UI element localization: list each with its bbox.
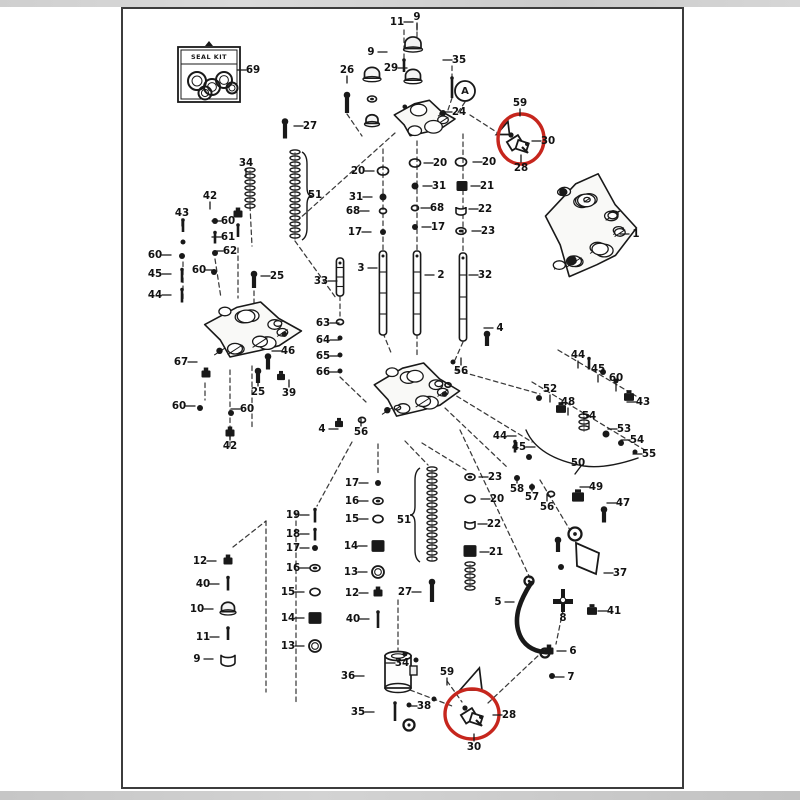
part-glyph-washer [368,96,377,102]
part-glyph-cap [365,115,380,127]
part-glyph-bolt [555,537,562,552]
part-glyph-block [464,545,477,557]
part-glyph-bolt [429,579,436,602]
part-callout-60: 60 [240,403,254,415]
seal-kit-pointer-icon [205,41,213,46]
part-callout-11: 11 [390,16,404,28]
part-glyph-dot [440,110,446,116]
part-callout-60: 60 [172,400,186,412]
part-glyph-washer [373,498,383,505]
part-glyph-pin [393,701,397,721]
part-callout-26: 26 [340,64,354,76]
part-glyph-spool [459,253,466,341]
part-glyph-dot [312,545,318,551]
assembly-dash-line [422,443,466,470]
part-callout-63: 63 [316,317,330,329]
part-callout-40: 40 [346,613,360,625]
part-glyph-pin [180,288,184,303]
part-glyph-cap [404,37,423,52]
part-callout-51: 51 [397,514,411,526]
part-glyph-oring [456,158,467,166]
part-glyph-tri [460,668,482,690]
part-callout-15: 15 [281,586,295,598]
part-callout-45: 45 [512,441,526,453]
assembly-dash-line [340,377,366,402]
part-glyph-oring [410,159,421,167]
part-callout-18: 18 [286,528,300,540]
part-callout-44: 44 [148,289,162,301]
part-callout-45: 45 [148,268,162,280]
part-glyph-dot [618,440,624,446]
part-callout-28: 28 [502,709,516,721]
part-callout-38: 38 [417,700,431,712]
part-glyph-plug [202,368,211,378]
part-glyph-spool [379,251,386,335]
part-callout-9: 9 [413,11,420,23]
seal-kit-title: SEAL KIT [191,53,227,61]
part-glyph-bolt [265,353,272,369]
part-callout-14: 14 [344,540,358,552]
part-callout-4: 4 [318,423,325,435]
part-glyph-bolt [484,331,491,346]
exploded-parts-diagram: SEAL KITA1199292635245930286927341514243… [0,0,800,800]
part-callout-10: 10 [190,603,204,615]
part-callout-20: 20 [490,493,504,505]
part-callout-22: 22 [487,518,501,530]
part-glyph-dot [338,369,343,374]
part-glyph-block [372,540,385,552]
part-glyph-spool [336,258,343,296]
part-callout-36: 36 [341,670,355,682]
assembly-dash-line [295,241,336,298]
part-glyph-pin [450,76,454,98]
part-glyph-pin [376,610,380,628]
part-callout-49: 49 [589,481,603,493]
part-callout-68: 68 [346,205,360,217]
part-glyph-dot [375,480,381,486]
part-callout-64: 64 [316,334,330,346]
assembly-dash-line [250,206,252,246]
part-glyph-dot [603,431,610,438]
part-callout-61: 61 [221,231,235,243]
part-glyph-oring [465,495,475,502]
part-callout-9: 9 [367,46,374,58]
part-glyph-cup [456,207,466,215]
part-glyph-oring [373,515,383,522]
part-callout-62: 62 [223,245,237,257]
part-glyph-dot [380,194,387,201]
part-callout-43: 43 [636,396,650,408]
part-callout-13: 13 [344,566,358,578]
part-callout-54: 54 [582,410,596,422]
part-glyph-plug [224,555,233,565]
part-glyph-pin [402,58,406,72]
part-glyph-spool [413,251,420,335]
part-callout-69: 69 [246,64,260,76]
part-callout-23: 23 [488,471,502,483]
part-glyph-spring [465,562,475,590]
center-valve-body [374,363,459,416]
part-glyph-dot [412,224,418,230]
assembly-dash-line [470,115,498,133]
part-glyph-dot [403,652,408,657]
part-callout-20: 20 [482,156,496,168]
part-callout-56: 56 [540,501,554,513]
part-glyph-dot [412,183,419,190]
part-glyph-plug [572,489,584,501]
part-callout-34: 34 [395,657,409,669]
part-callout-39: 39 [282,387,296,399]
part-glyph-pin [236,223,240,237]
part-callout-42: 42 [223,440,237,452]
part-glyph-plug [277,371,285,380]
part-glyph-dot [432,697,437,702]
part-callout-48: 48 [561,396,575,408]
part-callout-35: 35 [351,706,365,718]
part-glyph-dot [407,703,412,708]
part-callout-32: 32 [478,269,492,281]
part-glyph-eyelet [404,720,415,731]
part-callout-41: 41 [607,605,621,617]
part-callout-16: 16 [286,562,300,574]
part-callout-25: 25 [251,386,265,398]
part-glyph-cap [363,67,381,81]
part-callout-12: 12 [345,587,359,599]
part-glyph-oring [359,417,366,422]
part-callout-20: 20 [433,157,447,169]
scanned-parts-page: SEAL KITA1199292635245930286927341514243… [0,0,800,800]
part-callout-37: 37 [613,567,627,579]
part-glyph-cup [221,655,235,666]
part-glyph-block [457,181,468,191]
part-callout-8: 8 [559,612,566,624]
part-callout-17: 17 [431,221,445,233]
part-callout-29: 29 [384,62,398,74]
part-glyph-dot [526,454,532,460]
part-callout-52: 52 [543,383,557,395]
part-callout-60: 60 [192,264,206,276]
part-callout-16: 16 [345,495,359,507]
part-callout-67: 67 [174,356,188,368]
part-callout-55: 55 [642,448,656,460]
part-callout-44: 44 [571,349,585,361]
part-glyph-plug [335,418,343,427]
part-callout-23: 23 [481,225,495,237]
part-callout-51: 51 [308,189,322,201]
part-glyph-fit [461,705,483,726]
part-glyph-cap [220,602,236,615]
part-glyph-dot [228,410,234,416]
part-glyph-cup [465,521,475,529]
part-glyph-dot [558,564,564,570]
part-callout-4: 4 [496,322,503,334]
part-glyph-bolt [282,118,289,138]
part-callout-25: 25 [270,270,284,282]
seal-kit-box: SEAL KIT [178,41,240,102]
part-callout-21: 21 [480,180,494,192]
part-glyph-bolt [601,506,608,522]
part-glyph-dot [179,253,185,259]
part-callout-28: 28 [514,162,528,174]
assembly-dash-line [215,259,221,298]
assembly-dash-line [488,653,541,703]
part-glyph-washer [465,474,475,481]
part-callout-47: 47 [616,497,630,509]
complete-assembly-1 [546,174,637,277]
part-glyph-pin [226,626,230,640]
part-callout-57: 57 [525,491,539,503]
part-glyph-washer [310,565,320,572]
part-glyph-plug [587,604,597,615]
part-callout-2: 2 [437,269,444,281]
part-glyph-dot [197,405,203,411]
part-callout-19: 19 [286,509,300,521]
part-callout-60: 60 [148,249,162,261]
part-callout-31: 31 [432,180,446,192]
part-glyph-dot [338,353,343,358]
part-callout-56: 56 [354,426,368,438]
pipe-5 [517,583,544,652]
part-callout-27: 27 [303,120,317,132]
group-brace [410,468,420,562]
detail-marker-a: A [455,81,475,101]
part-glyph-cap [404,69,422,83]
part-callout-59: 59 [513,97,527,109]
top-valve-body [394,100,455,135]
part-callout-21: 21 [489,546,503,558]
part-callout-9: 9 [193,653,200,665]
part-callout-34: 34 [239,157,253,169]
part-callout-56: 56 [454,365,468,377]
part-callout-65: 65 [316,350,330,362]
part-glyph-dot [536,395,542,401]
part-callout-14: 14 [281,612,295,624]
part-callout-30: 30 [467,741,481,753]
part-callout-12: 12 [193,555,207,567]
part-glyph-pin [313,508,317,523]
part-callout-30: 30 [541,135,555,147]
part-callout-60: 60 [609,372,623,384]
part-glyph-spring [427,467,437,561]
part-glyph-eyelet [569,528,582,541]
part-callout-13: 13 [281,640,295,652]
part-callout-31: 31 [349,191,363,203]
part-glyph-ring [309,640,321,652]
part-glyph-dot [181,240,186,245]
part-glyph-spring [290,150,300,240]
part-glyph-oring [337,319,344,324]
part-glyph-washer [456,228,466,235]
part-glyph-pin [180,268,184,283]
assembly-dash-line [455,342,463,360]
part-glyph-plug [374,587,383,597]
part-callout-22: 22 [478,203,492,215]
part-callout-15: 15 [345,513,359,525]
part-callout-17: 17 [345,477,359,489]
part-glyph-dot [451,360,456,365]
part-callout-42: 42 [203,190,217,202]
part-callout-59: 59 [440,666,454,678]
part-callout-46: 46 [281,345,295,357]
part-glyph-block [309,612,322,624]
part-glyph-oring [310,588,320,595]
part-callout-24: 24 [452,106,466,118]
part-callout-54: 54 [630,434,644,446]
part-callout-68: 68 [430,202,444,214]
part-glyph-dot [380,229,386,235]
part-callout-43: 43 [175,207,189,219]
part-glyph-bolt [251,271,258,288]
svg-text:A: A [461,86,469,97]
part-glyph-pin [226,576,230,591]
part-callout-44: 44 [493,430,507,442]
part-glyph-pin [313,528,317,541]
part-callout-1: 1 [632,228,639,240]
part-callout-35: 35 [452,54,466,66]
assembly-dash-line [383,333,392,355]
assembly-dash-line [347,114,362,136]
part-callout-45: 45 [591,363,605,375]
part-callout-50: 50 [571,457,585,469]
part-callout-17: 17 [348,226,362,238]
part-glyph-bolt [344,92,351,113]
part-callout-17: 17 [286,542,300,554]
part-callout-60: 60 [221,215,235,227]
part-glyph-plug [624,390,634,401]
part-callout-7: 7 [567,671,574,683]
part-glyph-fit [507,132,529,153]
part-callout-3: 3 [357,262,364,274]
bracket-37 [576,543,599,574]
part-callout-27: 27 [398,586,412,598]
part-glyph-dot [549,673,555,679]
part-callout-66: 66 [316,366,330,378]
assembly-dash-line [233,521,266,547]
part-callout-58: 58 [510,483,524,495]
part-glyph-ring [372,566,384,578]
part-callout-20: 20 [351,165,365,177]
part-callout-11: 11 [196,631,210,643]
part-callout-6: 6 [569,645,576,657]
part-callout-5: 5 [494,596,501,608]
part-glyph-dot [414,658,419,663]
part-callout-40: 40 [196,578,210,590]
part-glyph-oring [380,208,387,213]
part-callout-33: 33 [314,275,328,287]
